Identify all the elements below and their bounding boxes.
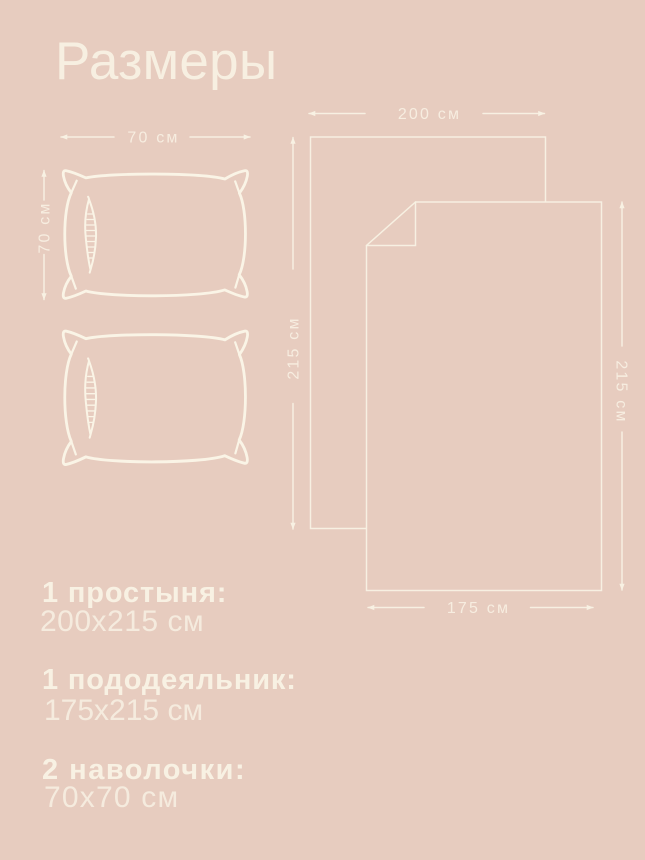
svg-text:215 см: 215 см bbox=[613, 360, 630, 423]
svg-text:215 см: 215 см bbox=[286, 316, 303, 379]
svg-text:200 см: 200 см bbox=[398, 106, 461, 123]
svg-text:175 см: 175 см bbox=[447, 600, 510, 617]
svg-text:70 см: 70 см bbox=[127, 130, 179, 147]
svg-text:70 см: 70 см bbox=[37, 201, 54, 253]
